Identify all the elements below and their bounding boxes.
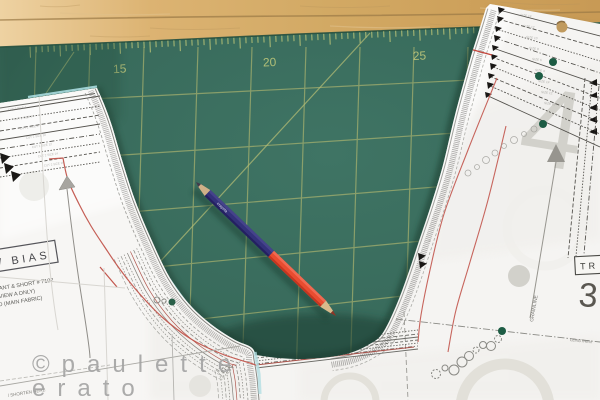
svg-text:20: 20 xyxy=(263,55,277,70)
svg-text:TR: TR xyxy=(580,261,598,272)
svg-text:©paulette: ©paulette xyxy=(32,351,243,378)
svg-text:25: 25 xyxy=(412,48,426,63)
svg-text:erato: erato xyxy=(32,375,147,400)
svg-text:3: 3 xyxy=(577,276,599,315)
